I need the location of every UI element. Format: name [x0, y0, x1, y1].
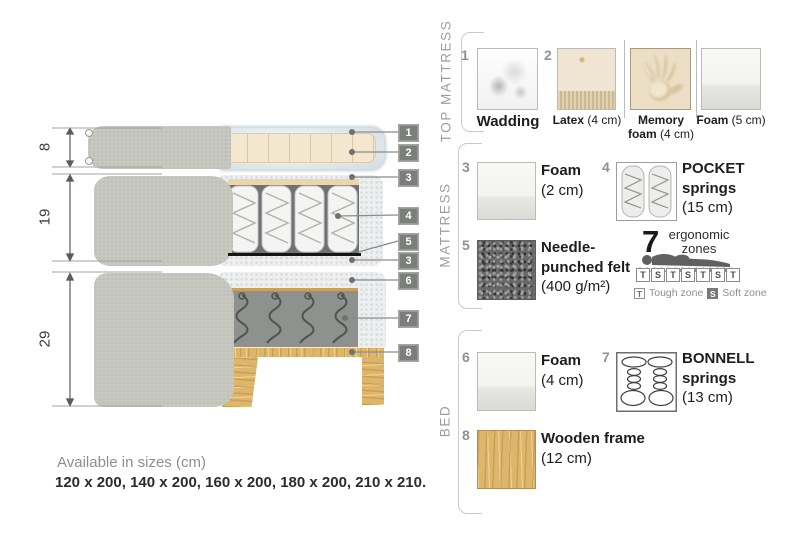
bonnell-springs-size: (13 cm)	[682, 388, 767, 408]
bonnell-springs-cutaway	[228, 291, 358, 347]
tough-zone-label: Tough zone	[649, 287, 703, 299]
wooden-frame-plank	[224, 348, 384, 357]
sizes-list: 120 x 200, 140 x 200, 160 x 200, 180 x 2…	[55, 474, 426, 491]
soft-zone-key-icon: S	[707, 288, 718, 299]
foam5-caption: Foam (5 cm)	[689, 114, 773, 128]
tough-zone-key-icon: T	[634, 288, 645, 299]
felt-name: Needle-punched felt	[541, 238, 633, 277]
callout-bonnell: 7	[398, 310, 419, 328]
zone-box: S	[711, 268, 725, 282]
wooden-frame-right-leg	[362, 357, 384, 405]
pocket-springs-cutaway	[228, 185, 359, 253]
memory-foam-size: (4 cm)	[660, 127, 694, 141]
foam2-thumbnail	[477, 162, 536, 220]
zone-key: T Tough zone S Soft zone	[634, 287, 767, 299]
zone-box: S	[681, 268, 695, 282]
latex-size: (4 cm)	[587, 113, 621, 127]
wooden-frame-size: (12 cm)	[541, 449, 681, 469]
callout-wooden-frame: 8	[398, 344, 419, 362]
pocket-springs-caption: POCKET springs (15 cm)	[682, 159, 762, 218]
wadding-name: Wadding	[477, 113, 540, 130]
bonnell-springs-name: BONNELL springs	[682, 349, 767, 388]
mattress-fabric	[94, 176, 233, 266]
bonnell-springs-thumbnail	[616, 352, 677, 412]
legend-divider	[696, 40, 697, 118]
foam5-size: (5 cm)	[732, 113, 766, 127]
foam2-name: Foam	[541, 161, 584, 181]
felt-size: (400 g/m²)	[541, 277, 633, 297]
wooden-frame-caption: Wooden frame (12 cm)	[541, 429, 681, 468]
bonnell-springs-caption: BONNELL springs (13 cm)	[682, 349, 767, 408]
latex-layer	[226, 133, 376, 163]
foam4-size: (4 cm)	[541, 371, 584, 391]
soft-zone-label: Soft zone	[722, 287, 766, 299]
top-mattress-fabric	[88, 126, 231, 169]
callout-wadding: 1	[398, 124, 419, 142]
foam4-name: Foam	[541, 351, 584, 371]
dimension-top-mattress: 8	[37, 143, 54, 151]
wooden-frame-name: Wooden frame	[541, 429, 681, 449]
pocket-springs-thumbnail	[616, 162, 677, 221]
callout-bed-foam: 6	[398, 272, 419, 290]
felt-layer-line	[228, 253, 361, 256]
felt-thumbnail	[477, 240, 536, 300]
mattress-bracket	[458, 143, 482, 309]
wadding-thumbnail	[477, 48, 538, 110]
foam2-caption: Foam (2 cm)	[541, 161, 584, 200]
foam5-name: Foam	[696, 113, 728, 127]
felt-caption: Needle-punched felt (400 g/m²)	[541, 238, 633, 297]
section-label-mattress: MATTRESS	[438, 182, 453, 267]
piping-button	[85, 157, 93, 165]
pocket-springs-name: POCKET springs	[682, 159, 762, 198]
zone-box: T	[666, 268, 680, 282]
bed-construction-infographic: 8 19 29 1 2 3 4 5 3 6 7 8 TOP MATTRESS 1…	[0, 0, 800, 533]
section-label-bed: BED	[438, 405, 453, 438]
legend-num-2: 2	[544, 47, 552, 63]
legend-num-7: 7	[602, 349, 610, 365]
callout-foam-top: 3	[398, 169, 419, 187]
callout-foam-bottom: 3	[398, 252, 419, 270]
wood-thumbnail	[477, 430, 536, 489]
zone-box: T	[636, 268, 650, 282]
dimension-mattress: 19	[37, 209, 54, 226]
dimension-bed: 29	[37, 331, 54, 348]
sizes-title: Available in sizes (cm)	[57, 454, 206, 471]
latex-thumbnail	[557, 48, 616, 110]
legend-divider	[624, 40, 625, 118]
zone-box: T	[696, 268, 710, 282]
callout-pocket: 4	[398, 207, 419, 225]
top-mattress-bracket	[461, 32, 484, 132]
latex-caption: Latex (4 cm)	[545, 114, 629, 128]
foam4-thumbnail	[477, 352, 536, 411]
latex-name: Latex	[553, 113, 584, 127]
legend-num-4: 4	[602, 159, 610, 175]
foam4-caption: Foam (4 cm)	[541, 351, 584, 390]
pocket-springs-size: (15 cm)	[682, 198, 762, 218]
zone-box: S	[651, 268, 665, 282]
callout-felt: 5	[398, 233, 419, 251]
callout-latex: 2	[398, 144, 419, 162]
foam2-size: (2 cm)	[541, 181, 584, 201]
bed-fabric	[94, 273, 234, 407]
piping-button	[85, 129, 93, 137]
section-label-top-mattress: TOP MATTRESS	[439, 20, 454, 143]
foam5-thumbnail	[701, 48, 761, 110]
zone-box: T	[726, 268, 740, 282]
zone-boxes-row: T S T S T S T	[636, 268, 740, 282]
memory-foam-thumbnail	[630, 48, 691, 110]
